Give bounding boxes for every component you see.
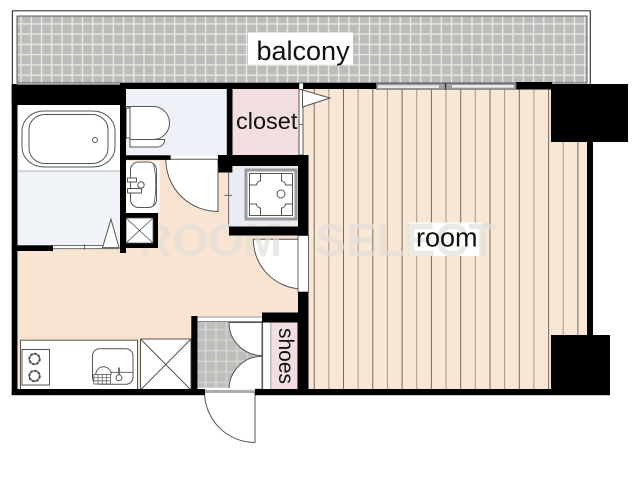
svg-text:shoes: shoes [274, 328, 297, 384]
svg-text:room: room [416, 223, 478, 253]
svg-text:balcony: balcony [257, 36, 351, 66]
svg-text:ROOM: ROOM [139, 214, 282, 266]
svg-text:closet: closet [236, 108, 298, 134]
